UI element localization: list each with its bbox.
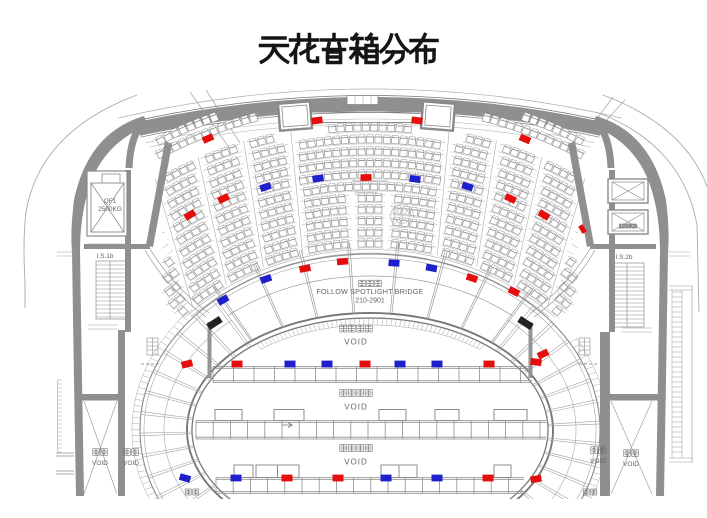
svg-text:210-2901: 210-2901 <box>355 298 385 305</box>
svg-text:VOID: VOID <box>344 403 368 412</box>
svg-text:VOID: VOID <box>344 458 368 467</box>
svg-text:1000KG: 1000KG <box>619 224 637 230</box>
svg-text:I.S.2b: I.S.2b <box>616 254 633 261</box>
svg-text:VOID: VOID <box>123 460 139 467</box>
svg-text:FOLLOW SPOTLIGHT BRIDGE: FOLLOW SPOTLIGHT BRIDGE <box>316 287 423 296</box>
svg-text:2500KG: 2500KG <box>98 206 122 213</box>
svg-text:VOID: VOID <box>623 461 639 468</box>
svg-text:I.S.1b: I.S.1b <box>97 253 114 260</box>
svg-text:VOID: VOID <box>344 338 368 347</box>
svg-text:VOID: VOID <box>590 458 606 465</box>
svg-text:VOID: VOID <box>92 460 108 467</box>
svg-text:QF1: QF1 <box>104 198 117 205</box>
